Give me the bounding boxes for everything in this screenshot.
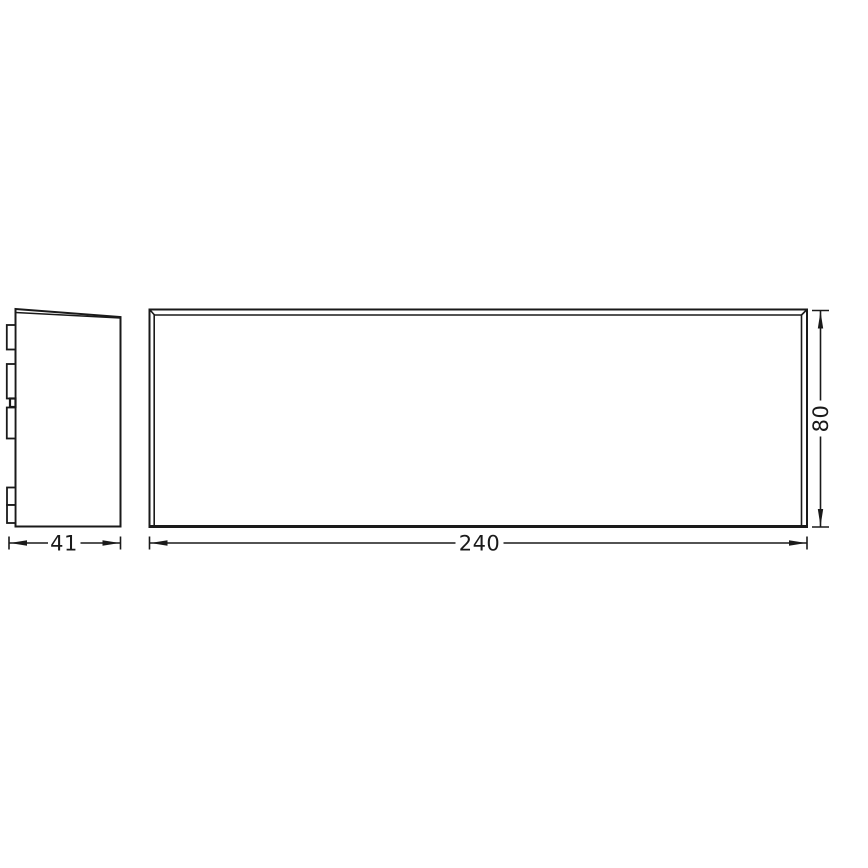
dimension-width-240: 240 (150, 532, 808, 556)
clip-connector-notch (10, 399, 16, 408)
mounting-clip-2 (7, 364, 16, 399)
dimension-drawing: 41 240 80 (0, 0, 868, 868)
mounting-clip-3 (7, 408, 16, 439)
mounting-clip-1 (7, 325, 16, 350)
dim-240-arrowhead-left (150, 540, 167, 545)
mounting-clip-4 (7, 488, 16, 506)
dimension-depth-41: 41 (9, 532, 121, 556)
dim-41-arrowhead-left (10, 540, 27, 545)
mounting-clip-5 (7, 505, 16, 523)
dim-41-arrowhead-right (103, 540, 120, 545)
front-view (150, 310, 808, 528)
dimension-height-80: 80 (809, 311, 833, 528)
side-view (7, 309, 121, 527)
dim-80-arrowhead-top (818, 311, 823, 328)
dim-41-label: 41 (50, 532, 78, 556)
dim-240-arrowhead-right (789, 540, 806, 545)
dim-80-label: 80 (809, 405, 833, 433)
side-view-outline (16, 309, 121, 527)
front-view-outline (150, 310, 808, 528)
dim-240-label: 240 (459, 532, 501, 556)
dim-80-arrowhead-bottom (818, 509, 823, 526)
dimension-drawing-page: 41 240 80 (0, 0, 868, 868)
